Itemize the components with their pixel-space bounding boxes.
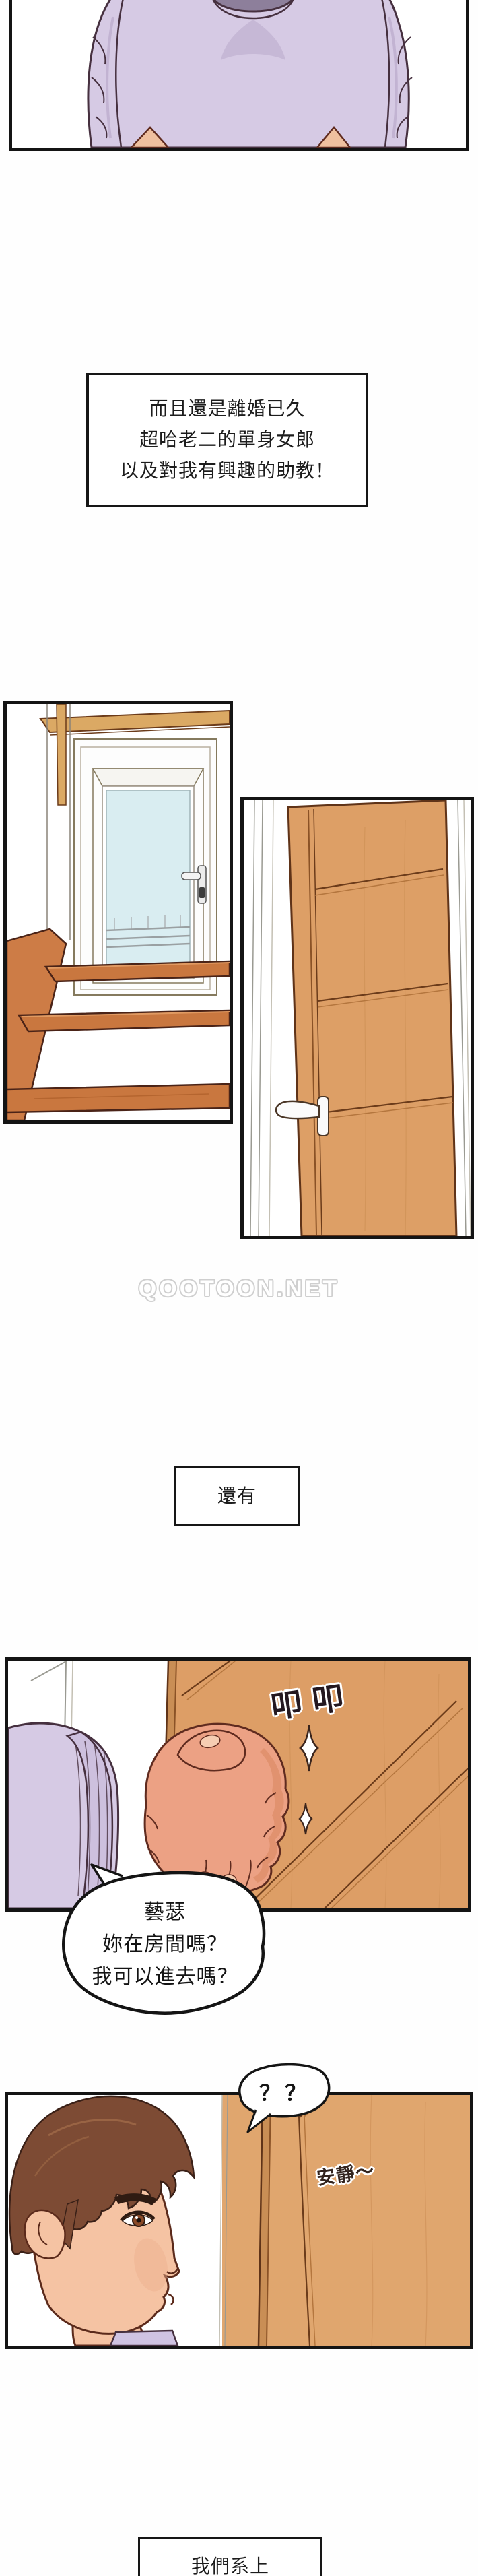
speech-line: 我可以進去嗎？: [92, 1961, 238, 1993]
narration-box-3: 我們系上: [138, 2537, 322, 2576]
sweater-torso-illustration: [12, 0, 466, 148]
watermark-text: QOOTOON.NET: [0, 1276, 478, 1302]
speech-line: ？？: [259, 2077, 310, 2109]
narration-box-2: 還有: [174, 1466, 300, 1526]
narration-line: 我們系上: [191, 2551, 269, 2576]
narration-line: 而且還是離婚已久: [149, 393, 305, 424]
question-bubble-text: ？？: [240, 2068, 330, 2118]
speech-bubble-text: 藝瑟 妳在房間嗎？ 我可以進去嗎？: [67, 1894, 263, 1995]
stairs-door-illustration: [7, 704, 230, 1120]
panel-sweater-torso: [9, 0, 469, 151]
shirt-collar: [110, 2331, 178, 2346]
panel-wooden-door: [240, 797, 474, 1239]
panel-stairs-door: [3, 701, 233, 1124]
narration-line: 以及對我有興趣的助教！: [120, 455, 335, 486]
door-handle-lever: [276, 1101, 319, 1118]
webtoon-page: 而且還是離婚已久 超哈老二的單身女郎 以及對我有興趣的助教！: [0, 0, 478, 2576]
speech-line: 妳在房間嗎？: [102, 1929, 228, 1961]
wooden-door-illustration: [244, 800, 471, 1236]
speech-line: 藝瑟: [144, 1896, 186, 1929]
narration-line: 超哈老二的單身女郎: [139, 424, 315, 455]
narration-line: 還有: [217, 1481, 257, 1512]
narration-box-1: 而且還是離婚已久 超哈老二的單身女郎 以及對我有興趣的助教！: [86, 373, 368, 507]
door-handle-lever: [182, 872, 201, 880]
